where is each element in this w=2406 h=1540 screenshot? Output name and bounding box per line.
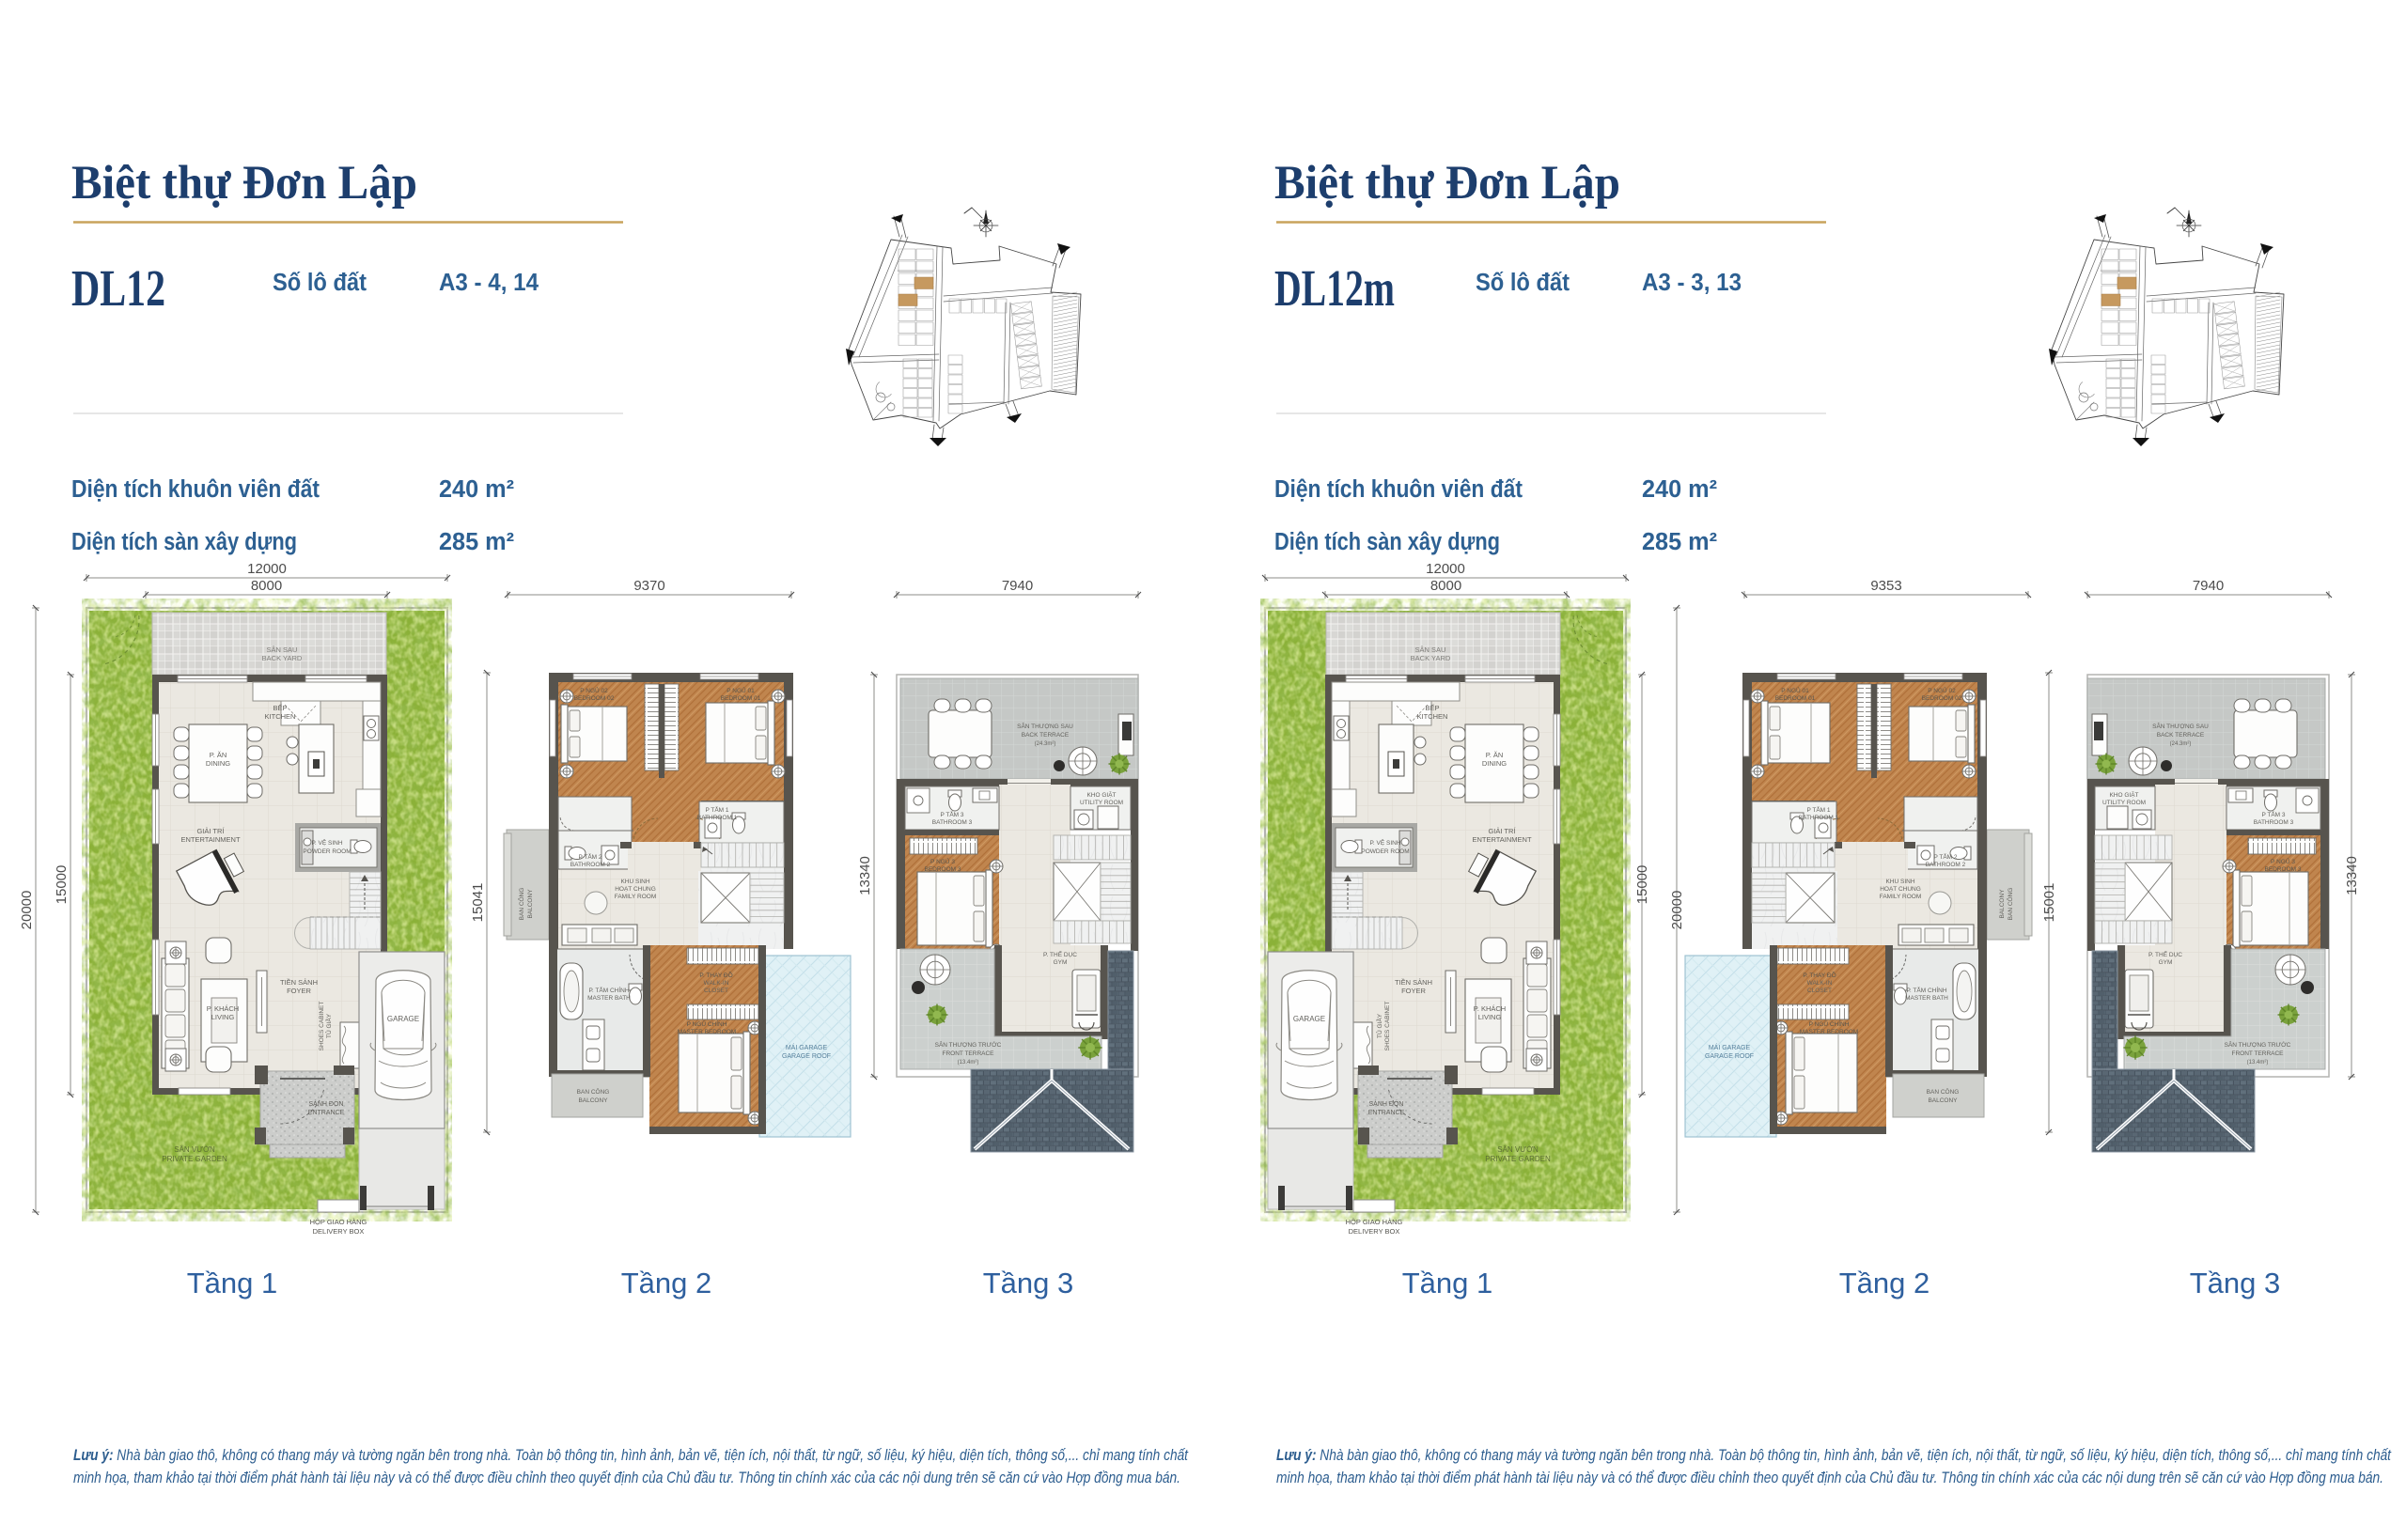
svg-text:9370: 9370	[633, 578, 664, 594]
svg-text:P NGỦ 01: P NGỦ 01	[1781, 686, 1809, 694]
svg-text:Tầng 1: Tầng 1	[1402, 1267, 1493, 1299]
svg-text:UTILITY ROOM: UTILITY ROOM	[1080, 800, 1123, 806]
svg-text:Diện tích khuôn viên đất: Diện tích khuôn viên đất	[1274, 476, 1523, 503]
svg-text:P. TẮM CHÍNH: P. TẮM CHÍNH	[1906, 986, 1946, 994]
svg-text:GARAGE: GARAGE	[387, 1015, 419, 1023]
svg-text:BEDROOM 02: BEDROOM 02	[1922, 695, 1962, 702]
svg-text:PRIVATE GARDEN: PRIVATE GARDEN	[162, 1155, 227, 1163]
svg-text:P NGỦ CHÍNH: P NGỦ CHÍNH	[1809, 1019, 1850, 1028]
svg-text:P NGỦ 3: P NGỦ 3	[930, 857, 955, 865]
svg-text:BATHROOM 1: BATHROOM 1	[697, 815, 738, 821]
svg-text:P. KHÁCH: P. KHÁCH	[1474, 1004, 1506, 1013]
svg-text:Số lô đất: Số lô đất	[273, 270, 367, 296]
svg-text:HỘP GIAO HÀNG: HỘP GIAO HÀNG	[1346, 1218, 1403, 1226]
svg-text:BATHROOM 3: BATHROOM 3	[932, 819, 973, 826]
svg-text:BEDROOM 3: BEDROOM 3	[2264, 866, 2301, 873]
svg-text:P. KHÁCH: P. KHÁCH	[207, 1004, 239, 1013]
svg-text:BAN CÔNG: BAN CÔNG	[1927, 1087, 1960, 1096]
svg-text:KHU SINH: KHU SINH	[620, 879, 649, 885]
svg-text:13340: 13340	[2344, 856, 2360, 895]
svg-text:TIỀN SẢNH: TIỀN SẢNH	[1395, 977, 1432, 987]
svg-text:8000: 8000	[1430, 578, 1461, 594]
svg-text:Tầng 1: Tầng 1	[187, 1267, 278, 1299]
svg-text:20000: 20000	[1669, 891, 1685, 930]
svg-text:P. ĂN: P. ĂN	[1486, 751, 1504, 759]
svg-text:9353: 9353	[1870, 578, 1901, 594]
svg-text:GARAGE ROOF: GARAGE ROOF	[782, 1053, 831, 1060]
svg-text:13340: 13340	[857, 856, 873, 895]
svg-text:12000: 12000	[247, 561, 287, 577]
svg-text:BẾP: BẾP	[273, 703, 287, 712]
svg-text:BATHROOM 3: BATHROOM 3	[2254, 819, 2294, 826]
svg-text:P. TẮM CHÍNH: P. TẮM CHÍNH	[588, 986, 629, 994]
svg-text:LIVING: LIVING	[1478, 1013, 1502, 1021]
svg-text:BALCONY: BALCONY	[527, 889, 534, 919]
svg-text:MÁI GARAGE: MÁI GARAGE	[786, 1043, 828, 1051]
svg-text:KHU SINH: KHU SINH	[1885, 879, 1914, 885]
svg-text:FRONT TERRACE: FRONT TERRACE	[2231, 1050, 2284, 1057]
svg-text:P NGỦ 3: P NGỦ 3	[2271, 857, 2295, 865]
svg-text:Tầng 2: Tầng 2	[621, 1267, 712, 1299]
svg-text:GIẢI TRÍ: GIẢI TRÍ	[1488, 827, 1516, 835]
svg-text:(24.3m²): (24.3m²)	[1035, 741, 1056, 747]
svg-text:KHO GIẶT: KHO GIẶT	[1086, 790, 1116, 799]
svg-text:MASTER BATH: MASTER BATH	[587, 995, 631, 1002]
svg-text:BACK TERRACE: BACK TERRACE	[2157, 732, 2205, 739]
svg-text:P NGỦ 02: P NGỦ 02	[580, 686, 608, 694]
svg-text:7940: 7940	[1002, 578, 1033, 594]
svg-text:P. VỆ SINH: P. VỆ SINH	[1369, 838, 1400, 847]
svg-text:BATHROOM 2: BATHROOM 2	[570, 862, 611, 868]
svg-text:DELIVERY BOX: DELIVERY BOX	[313, 1227, 365, 1236]
svg-text:12000: 12000	[1426, 561, 1465, 577]
svg-text:FOYER: FOYER	[287, 987, 311, 995]
svg-text:KHO GIẶT: KHO GIẶT	[2109, 790, 2138, 799]
svg-text:FAMILY ROOM: FAMILY ROOM	[615, 894, 657, 900]
svg-text:P TẮM 1: P TẮM 1	[1806, 805, 1830, 814]
svg-text:FRONT TERRACE: FRONT TERRACE	[942, 1050, 994, 1057]
svg-text:FOYER: FOYER	[1401, 987, 1426, 995]
svg-text:POWDER ROOM: POWDER ROOM	[1361, 848, 1409, 855]
svg-text:P TẮM 3: P TẮM 3	[940, 810, 963, 818]
svg-text:GARAGE ROOF: GARAGE ROOF	[1705, 1053, 1754, 1060]
svg-text:8000: 8000	[251, 578, 282, 594]
svg-text:(13.4m²): (13.4m²)	[958, 1060, 979, 1066]
svg-text:P. ĂN: P. ĂN	[210, 751, 227, 759]
svg-text:minh họa, tham khảo tại thời đ: minh họa, tham khảo tại thời điểm phát h…	[1276, 1469, 2383, 1486]
svg-text:DINING: DINING	[1482, 759, 1507, 768]
svg-text:BẾP: BẾP	[1425, 703, 1439, 712]
svg-text:ENTRANCE: ENTRANCE	[1368, 1110, 1405, 1116]
svg-text:POWDER ROOM: POWDER ROOM	[303, 848, 351, 855]
svg-text:SÂN THƯỢNG SAU: SÂN THƯỢNG SAU	[1017, 722, 1073, 730]
svg-text:SÂN VƯỜN: SÂN VƯỜN	[174, 1145, 215, 1154]
svg-text:Lưu ý: Nhà bàn giao thô, không: Lưu ý: Nhà bàn giao thô, không có thang …	[73, 1446, 1189, 1464]
svg-text:285 m²: 285 m²	[439, 529, 514, 555]
svg-text:DL12m: DL12m	[1274, 259, 1395, 317]
svg-text:285 m²: 285 m²	[1642, 529, 1717, 555]
svg-text:SÂN VƯỜN: SÂN VƯỜN	[1497, 1145, 1539, 1154]
svg-text:A3 - 3, 13: A3 - 3, 13	[1642, 270, 1742, 296]
svg-text:BAN CÔNG: BAN CÔNG	[517, 888, 525, 921]
svg-text:ENTERTAINMENT: ENTERTAINMENT	[1472, 835, 1531, 844]
svg-text:A3 - 4, 14: A3 - 4, 14	[439, 270, 539, 296]
svg-text:UTILITY ROOM: UTILITY ROOM	[2102, 800, 2146, 806]
svg-text:MASTER BEDROOM: MASTER BEDROOM	[1800, 1029, 1858, 1035]
svg-text:PRIVATE GARDEN: PRIVATE GARDEN	[1485, 1155, 1551, 1163]
svg-text:BEDROOM 3: BEDROOM 3	[924, 866, 961, 873]
svg-text:Lưu ý: Nhà bàn giao thô, không: Lưu ý: Nhà bàn giao thô, không có thang …	[1276, 1446, 2392, 1464]
svg-text:240 m²: 240 m²	[439, 476, 514, 503]
svg-text:Biệt thự Đơn Lập: Biệt thự Đơn Lập	[1274, 157, 1620, 210]
svg-text:Tầng 3: Tầng 3	[983, 1267, 1074, 1299]
svg-text:Biệt thự Đơn Lập: Biệt thự Đơn Lập	[71, 157, 417, 210]
svg-text:P NGỦ CHÍNH: P NGỦ CHÍNH	[687, 1019, 727, 1028]
svg-text:7940: 7940	[2193, 578, 2224, 594]
svg-text:MASTER BEDROOM: MASTER BEDROOM	[678, 1029, 736, 1035]
svg-text:TIỀN SẢNH: TIỀN SẢNH	[280, 977, 318, 987]
svg-text:P TẮM 1: P TẮM 1	[705, 805, 728, 814]
svg-text:SÂN SAU: SÂN SAU	[1415, 646, 1446, 654]
svg-text:(24.3m²): (24.3m²)	[2170, 741, 2192, 747]
svg-text:Tầng 3: Tầng 3	[2190, 1267, 2281, 1299]
svg-text:BALCONY: BALCONY	[1928, 1097, 1958, 1104]
svg-text:CLOSET: CLOSET	[704, 988, 728, 994]
svg-text:HỘP GIAO HÀNG: HỘP GIAO HÀNG	[310, 1218, 367, 1226]
svg-text:BALCONY: BALCONY	[578, 1097, 608, 1104]
svg-text:MASTER BATH: MASTER BATH	[1905, 995, 1948, 1002]
svg-text:20000: 20000	[19, 891, 35, 930]
svg-text:BACK YARD: BACK YARD	[262, 654, 303, 662]
svg-text:WALK-IN: WALK-IN	[704, 980, 729, 987]
svg-text:BATHROOM 2: BATHROOM 2	[1926, 862, 1966, 868]
svg-text:SẢNH ĐÓN: SẢNH ĐÓN	[309, 1099, 344, 1108]
svg-text:15001: 15001	[2041, 883, 2057, 923]
svg-text:KITCHEN: KITCHEN	[1417, 712, 1448, 721]
svg-text:GYM: GYM	[1054, 959, 1068, 966]
svg-text:DELIVERY BOX: DELIVERY BOX	[1349, 1227, 1400, 1236]
svg-text:HOẠT CHUNG: HOẠT CHUNG	[615, 886, 656, 893]
svg-text:BAN CÔNG: BAN CÔNG	[577, 1087, 610, 1096]
svg-text:minh họa, tham khảo tại thời đ: minh họa, tham khảo tại thời điểm phát h…	[73, 1469, 1180, 1486]
svg-text:240 m²: 240 m²	[1642, 476, 1717, 503]
svg-text:SẢNH ĐÓN: SẢNH ĐÓN	[1369, 1099, 1404, 1108]
svg-text:P NGỦ 01: P NGỦ 01	[726, 686, 755, 694]
svg-text:BEDROOM 01: BEDROOM 01	[1775, 695, 1816, 702]
svg-text:15000: 15000	[1634, 865, 1650, 905]
svg-text:BACK YARD: BACK YARD	[1411, 654, 1451, 662]
svg-text:SÂN SAU: SÂN SAU	[267, 646, 298, 654]
svg-text:BALCONY: BALCONY	[1999, 889, 2006, 919]
svg-text:15041: 15041	[470, 883, 486, 923]
svg-text:15000: 15000	[54, 865, 70, 905]
svg-text:Diện tích sàn xây dựng: Diện tích sàn xây dựng	[1274, 529, 1500, 555]
svg-text:SÂN THƯỢNG TRƯỚC: SÂN THƯỢNG TRƯỚC	[935, 1040, 1002, 1049]
svg-text:LIVING: LIVING	[211, 1013, 235, 1021]
svg-text:SÂN THƯỢNG TRƯỚC: SÂN THƯỢNG TRƯỚC	[2225, 1040, 2291, 1049]
svg-text:ENTERTAINMENT: ENTERTAINMENT	[180, 835, 240, 844]
svg-text:HOẠT CHUNG: HOẠT CHUNG	[1880, 886, 1921, 893]
svg-text:CLOSET: CLOSET	[1807, 988, 1832, 994]
svg-text:Diện tích khuôn viên đất: Diện tích khuôn viên đất	[71, 476, 320, 503]
svg-text:SÂN THƯỢNG SAU: SÂN THƯỢNG SAU	[2152, 722, 2209, 730]
svg-text:BAN CÔNG: BAN CÔNG	[2006, 888, 2014, 921]
svg-text:BACK TERRACE: BACK TERRACE	[1022, 732, 1070, 739]
svg-text:FAMILY ROOM: FAMILY ROOM	[1880, 894, 1922, 900]
svg-text:Diện tích sàn xây dựng: Diện tích sàn xây dựng	[71, 529, 297, 555]
svg-text:GIẢI TRÍ: GIẢI TRÍ	[196, 827, 225, 835]
svg-text:BATHROOM 1: BATHROOM 1	[1799, 815, 1839, 821]
svg-text:P TẮM 3: P TẮM 3	[2261, 810, 2285, 818]
svg-text:ENTRANCE: ENTRANCE	[308, 1110, 345, 1116]
svg-text:SHOES CABINET: SHOES CABINET	[1384, 1002, 1391, 1051]
svg-text:P. VỆ SINH: P. VỆ SINH	[311, 838, 342, 847]
svg-text:P TẮM 2: P TẮM 2	[1933, 852, 1957, 861]
svg-text:P. THỂ DỤC: P. THỂ DỤC	[1043, 950, 1077, 958]
svg-text:WALK-IN: WALK-IN	[1807, 980, 1833, 987]
svg-text:P TẮM 2: P TẮM 2	[578, 852, 601, 861]
svg-text:(13.4m²): (13.4m²)	[2247, 1060, 2269, 1066]
svg-text:MÁI GARAGE: MÁI GARAGE	[1709, 1043, 1751, 1051]
svg-text:P NGỦ 02: P NGỦ 02	[1928, 686, 1956, 694]
svg-text:KITCHEN: KITCHEN	[265, 712, 296, 721]
svg-text:GARAGE: GARAGE	[1293, 1015, 1325, 1023]
svg-text:Số lô đất: Số lô đất	[1476, 270, 1570, 296]
svg-text:DINING: DINING	[206, 759, 230, 768]
svg-text:BEDROOM 02: BEDROOM 02	[574, 695, 615, 702]
svg-text:P. THỂ DỤC: P. THỂ DỤC	[2148, 950, 2182, 958]
svg-text:DL12: DL12	[71, 259, 165, 317]
svg-text:Tầng 2: Tầng 2	[1839, 1267, 1930, 1299]
svg-text:GYM: GYM	[2159, 959, 2173, 966]
svg-text:SHOES CABINET: SHOES CABINET	[319, 1002, 325, 1051]
svg-text:BEDROOM 01: BEDROOM 01	[721, 695, 761, 702]
